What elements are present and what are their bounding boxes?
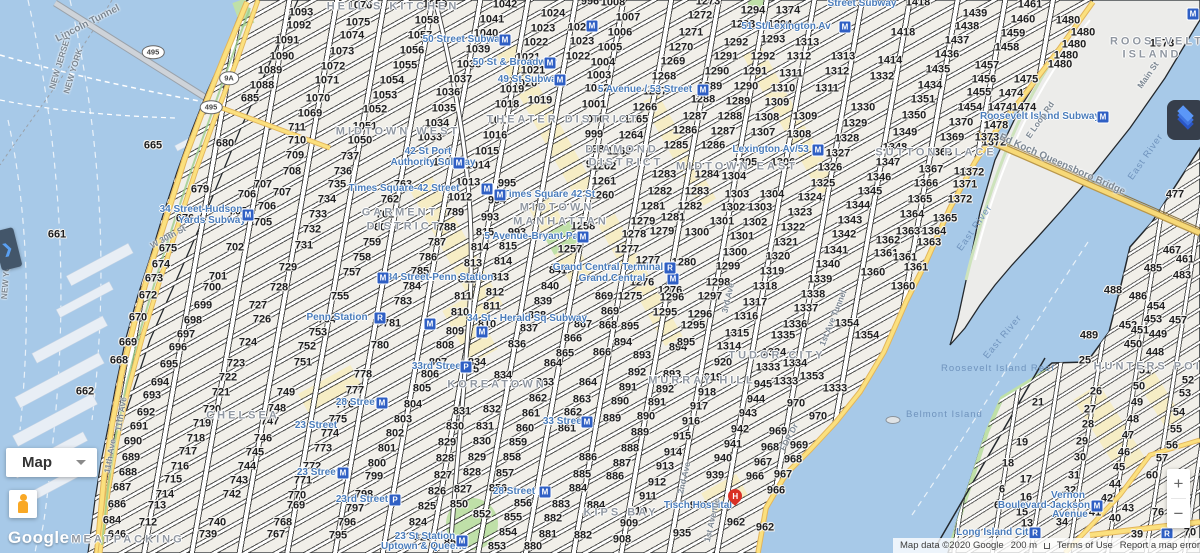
chevron-right-icon: ❯ <box>0 240 14 258</box>
layers-button[interactable] <box>1167 100 1200 140</box>
map-type-label: Map <box>22 454 52 471</box>
map-type-button[interactable]: Map <box>6 448 97 477</box>
scale-bar <box>1044 543 1050 549</box>
map-data-credit: Map data ©2020 Google <box>900 540 1004 551</box>
chevron-down-icon <box>76 460 86 465</box>
pegman-button[interactable] <box>9 490 37 518</box>
map-roads-layer <box>0 0 1200 553</box>
report-error-link[interactable]: Report a map error <box>1120 540 1200 551</box>
attribution-bar: Map data ©2020 Google 200 m Terms of Use… <box>893 538 1200 553</box>
zoom-in-button[interactable]: + <box>1167 469 1190 498</box>
google-logo[interactable]: Google <box>8 528 70 548</box>
zoom-out-button[interactable]: − <box>1167 499 1190 528</box>
zoom-control: + − <box>1167 469 1190 528</box>
pegman-icon <box>17 494 29 514</box>
terms-link[interactable]: Terms of Use <box>1057 540 1113 551</box>
scale-label: 200 m <box>1011 540 1037 551</box>
map-canvas[interactable]: 6656806616626686796766756746736726706696… <box>0 0 1200 553</box>
